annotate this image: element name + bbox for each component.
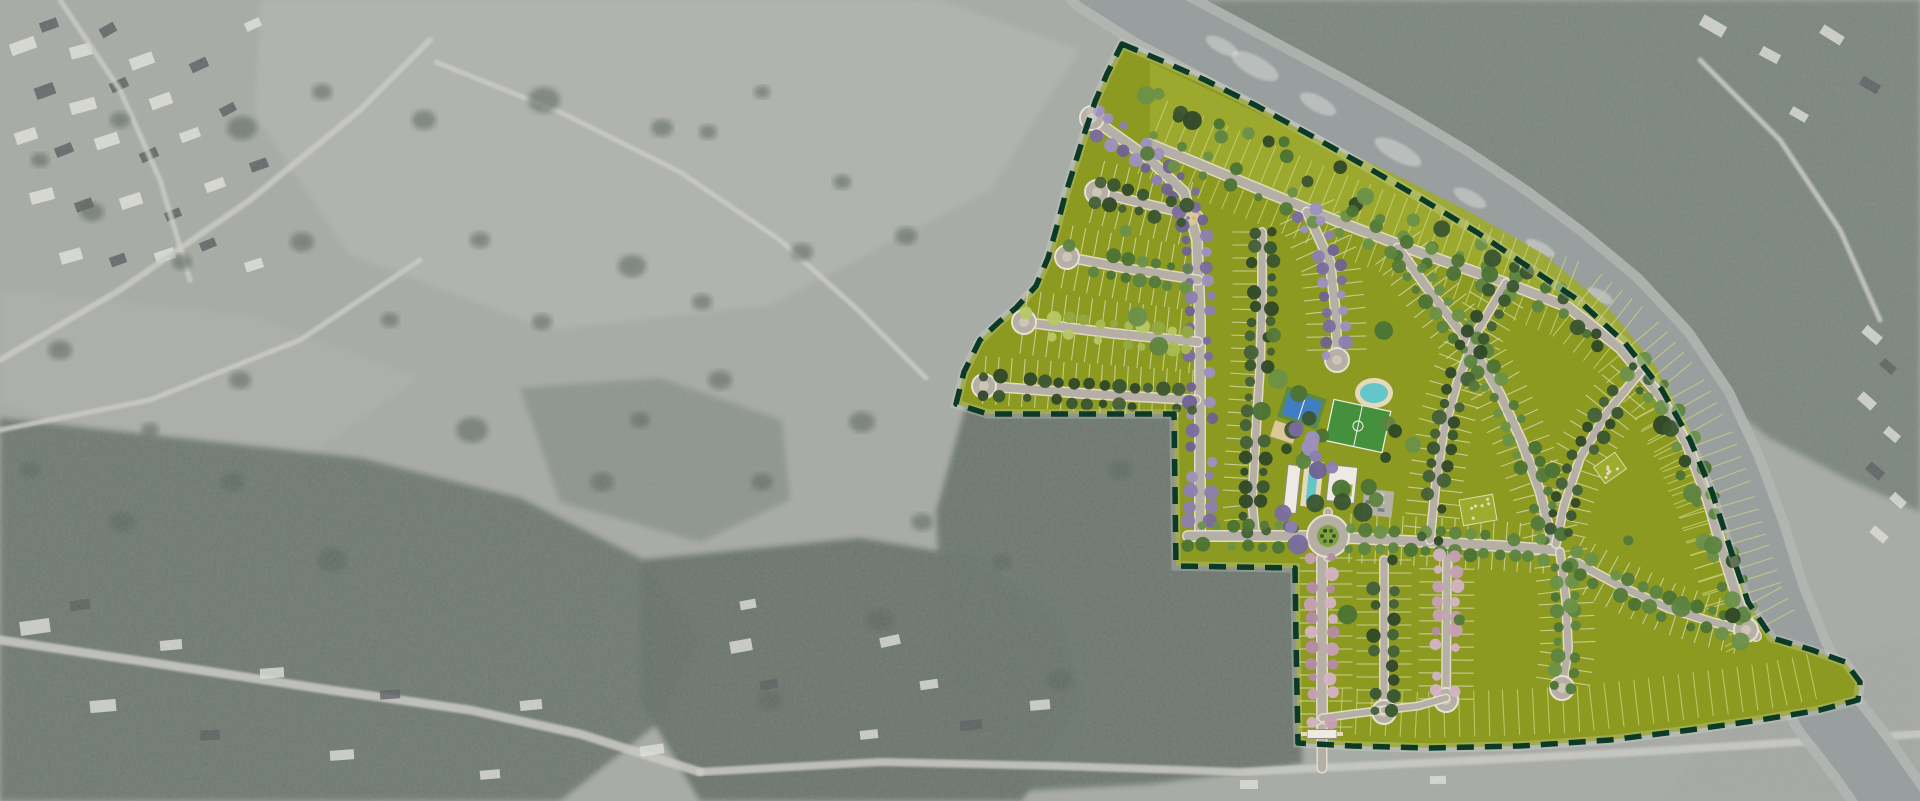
masterplan-aerial-image bbox=[0, 0, 1920, 801]
site-plan-svg bbox=[0, 0, 1920, 801]
pocket-park bbox=[1459, 494, 1497, 526]
